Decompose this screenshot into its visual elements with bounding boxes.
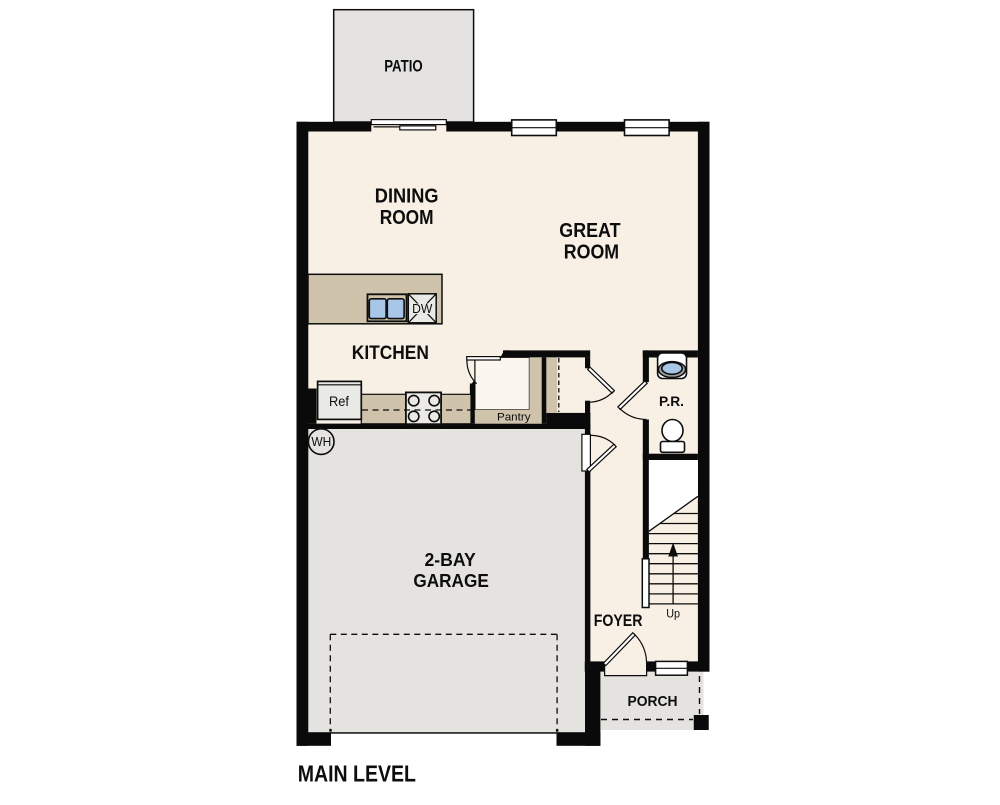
- svg-text:FOYER: FOYER: [594, 611, 643, 630]
- svg-text:KITCHEN: KITCHEN: [352, 343, 429, 364]
- svg-text:DINING: DINING: [375, 185, 439, 208]
- svg-text:WH: WH: [311, 435, 331, 449]
- svg-text:PATIO: PATIO: [384, 58, 423, 76]
- svg-text:DW: DW: [412, 301, 433, 316]
- svg-text:GARAGE: GARAGE: [413, 571, 488, 591]
- svg-text:GREAT: GREAT: [559, 219, 621, 242]
- svg-text:ROOM: ROOM: [380, 206, 434, 229]
- svg-text:Ref: Ref: [329, 394, 349, 409]
- svg-text:2-BAY: 2-BAY: [425, 550, 476, 570]
- svg-text:ROOM: ROOM: [564, 241, 619, 264]
- svg-text:Pantry: Pantry: [497, 411, 531, 423]
- svg-text:Up: Up: [666, 607, 680, 621]
- svg-text:P.R.: P.R.: [659, 393, 684, 409]
- svg-text:MAIN LEVEL: MAIN LEVEL: [298, 761, 416, 787]
- svg-text:PORCH: PORCH: [628, 693, 678, 710]
